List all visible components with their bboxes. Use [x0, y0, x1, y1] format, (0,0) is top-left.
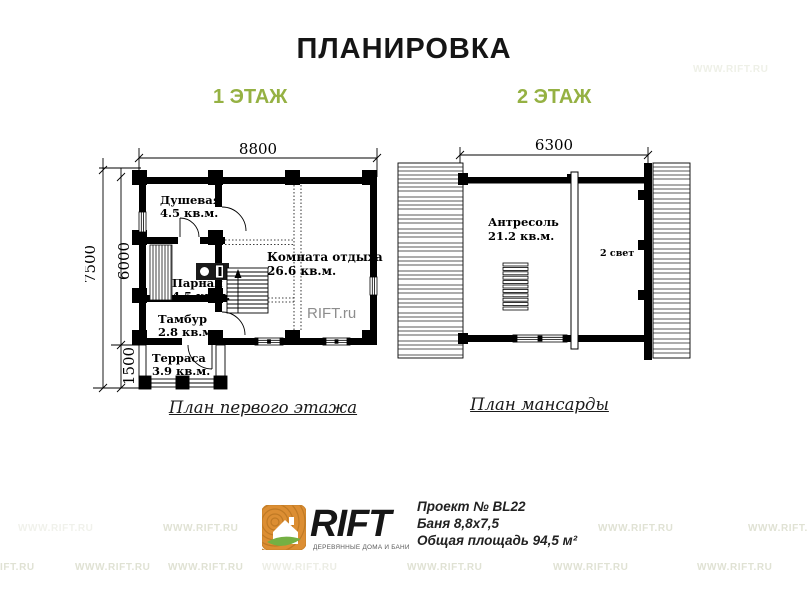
floor-plan-2: 6300: [395, 130, 695, 370]
bench-hatch: [150, 245, 172, 300]
watermark: WWW.RIFT.RU: [18, 523, 93, 534]
logo-icon: [262, 505, 306, 550]
watermark: WWW.RIFT.RU: [553, 562, 628, 573]
room-lounge-area: 26.6 кв.м.: [267, 264, 336, 278]
watermark: WWW.RIFT.RU: [748, 523, 808, 534]
room-terrace-name: Терраса: [152, 351, 206, 365]
dim-height-1500: 1500: [120, 347, 138, 385]
watermark: WWW.RIFT.RU: [407, 562, 482, 573]
watermark: WWW.RIFT.RU: [163, 523, 238, 534]
roof-hatch-left: [398, 163, 463, 358]
logo-tagline: ДЕРЕВЯННЫЕ ДОМА И БАНИ: [313, 544, 410, 551]
roof-hatch-right: [653, 163, 690, 358]
floor-2-label: 2 ЭТАЖ: [517, 86, 591, 109]
logo-text: RIFT: [310, 503, 390, 546]
window: [513, 335, 567, 342]
dim-height-6000: 6000: [115, 242, 133, 280]
walls: [458, 163, 652, 360]
room-terrace-area: 3.9 кв.м.: [152, 364, 210, 378]
double-height-note: 2 свет: [600, 248, 634, 259]
room-shower-area: 4.5 кв.м.: [160, 206, 218, 220]
watermark: WWW.RIFT.RU: [168, 562, 243, 573]
staircase: [503, 263, 528, 310]
room-hall-area: 2.8 кв.м.: [158, 325, 216, 339]
project-size: Баня 8,8х7,5: [417, 516, 677, 531]
room-steam-name: Парная: [172, 276, 223, 290]
watermark: WWW.RIFT.RU: [697, 562, 772, 573]
page-title: ПЛАНИРОВКА: [0, 33, 808, 66]
page: WWW.RIFT.RU WWW.RIFT.RU WWW.RIFT.RU WWW.…: [0, 0, 808, 589]
floor-plan-1: 8800 7500 6000 1500: [85, 130, 405, 400]
room-lounge-name: Комната отдыха: [267, 250, 383, 264]
watermark: WWW.RIFT.RU: [75, 562, 150, 573]
room-shower-name: Душевая: [160, 193, 222, 207]
watermark: IFT.RU: [0, 562, 35, 573]
staircase: [227, 268, 268, 313]
watermark: WWW.RIFT.RU: [262, 562, 337, 573]
dim-width-8800: 8800: [239, 140, 277, 158]
floor-1-label: 1 ЭТАЖ: [213, 86, 287, 109]
plan-1-caption: План первого этажа: [168, 398, 358, 417]
room-steam-area: 4.5 кв.м.: [172, 289, 230, 303]
ridge-divider: [563, 172, 578, 349]
room-mezzanine-name: Антресоль: [488, 215, 559, 229]
project-area: Общая площадь 94,5 м²: [417, 533, 677, 548]
project-number: Проект № BL22: [417, 499, 677, 514]
room-hall-name: Тамбур: [158, 312, 207, 326]
dim-width-6300: 6300: [535, 136, 573, 154]
plan-watermark: RIFT.ru: [307, 305, 356, 322]
dim-height-7500: 7500: [85, 245, 99, 283]
plan-2-caption: План мансарды: [462, 395, 617, 414]
room-mezzanine-area: 21.2 кв.м.: [488, 229, 554, 243]
